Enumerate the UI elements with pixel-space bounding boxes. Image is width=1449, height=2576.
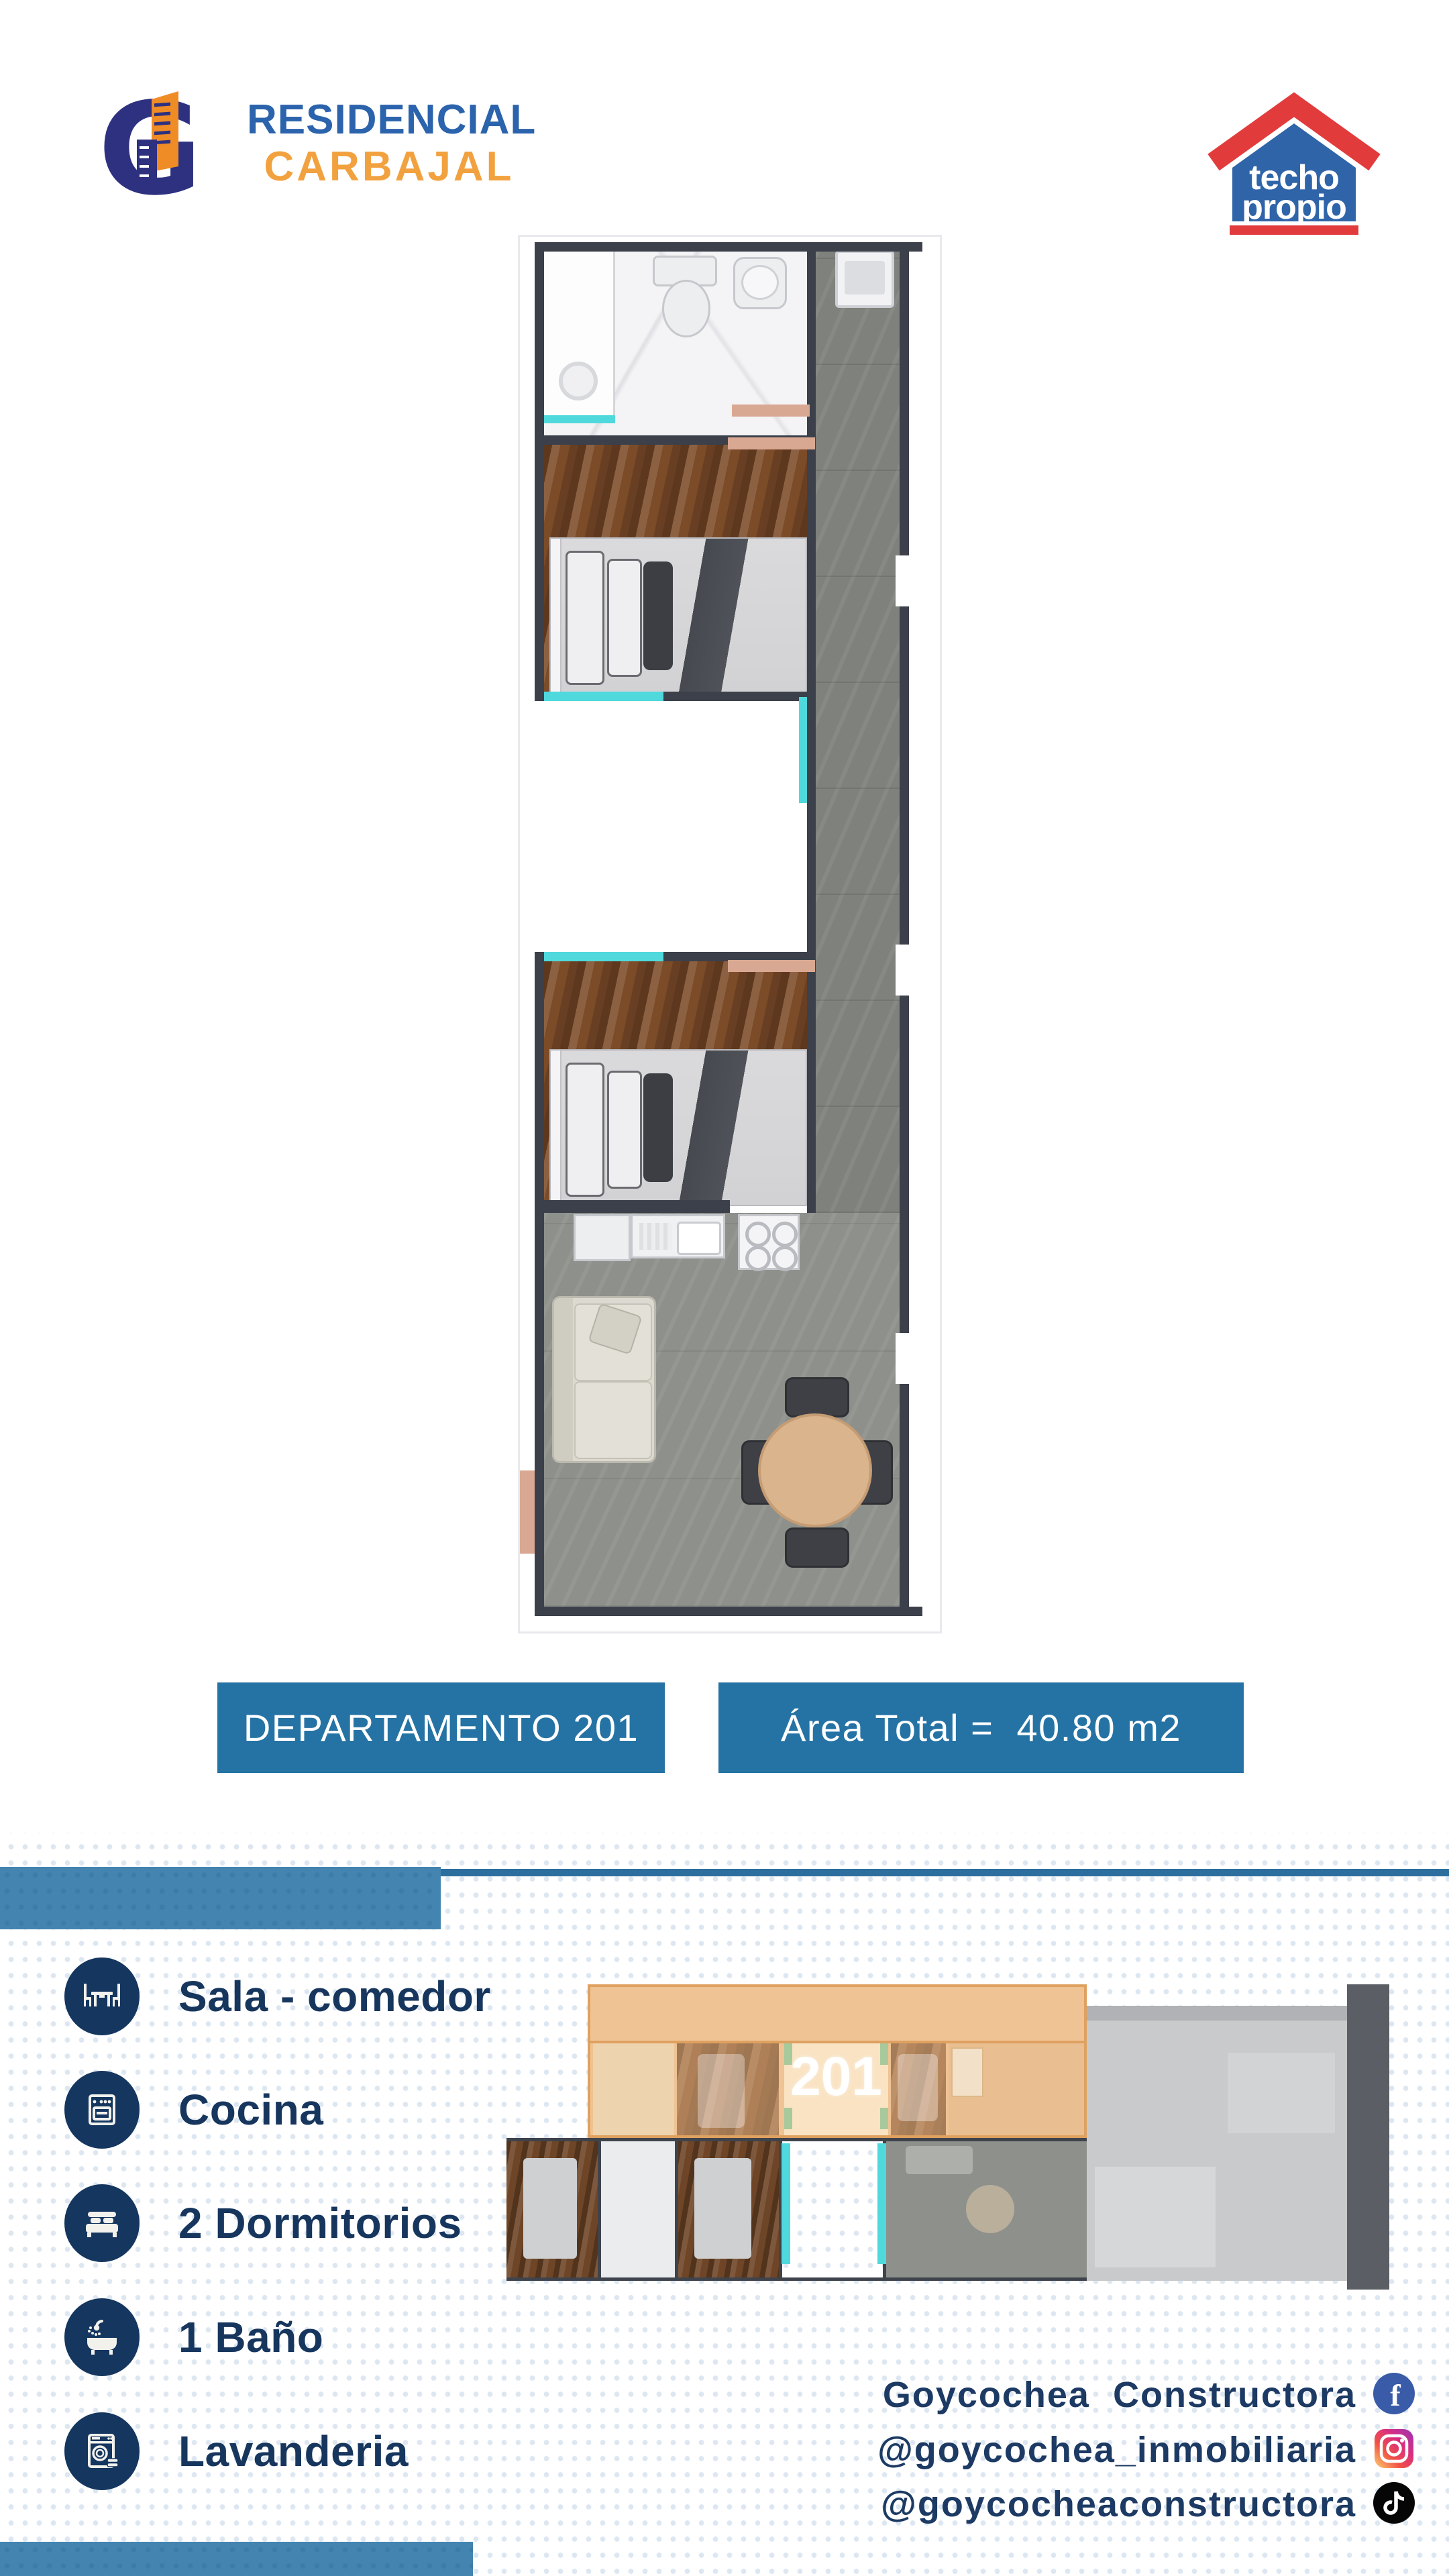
window-bedroom1 (544, 692, 663, 701)
bed-bedroom1 (549, 537, 807, 694)
amenity-dormitorios: 2 Dormitorios (64, 2184, 507, 2262)
amenity-label: 2 Dormitorios (178, 2198, 462, 2248)
hallway-door-gap (896, 1333, 913, 1384)
svg-text:propio: propio (1242, 188, 1346, 227)
patio-window-sill (544, 415, 615, 423)
social-links: Goycochea Constructora f @goycochea_inmo… (805, 2373, 1415, 2534)
bathroom-door (732, 405, 810, 417)
wall-bedroom2-bottom (535, 1200, 730, 1213)
instagram-icon[interactable] (1373, 2427, 1415, 2473)
dining-chair (785, 1377, 849, 1417)
banner-unit: DEPARTAMENTO 201 (217, 1682, 665, 1773)
amenity-label: Lavanderia (178, 2426, 409, 2476)
shower-drain (559, 362, 598, 400)
g-building-icon: G (99, 80, 220, 208)
svg-text:f: f (1390, 2378, 1401, 2412)
wall-top (535, 242, 922, 252)
level-plan: 201 (503, 1972, 1395, 2291)
techo-propio-house-icon: techo propio (1203, 87, 1385, 235)
stove (738, 1214, 800, 1270)
laundry-sink (835, 250, 894, 308)
facebook-handle[interactable]: Goycochea Constructora (883, 2374, 1356, 2416)
facebook-icon[interactable]: f (1373, 2372, 1415, 2418)
techo-propio-logo: techo propio (1203, 87, 1385, 235)
social-facebook[interactable]: Goycochea Constructora f (805, 2373, 1415, 2416)
washer-icon (64, 2412, 140, 2490)
lower-unit-plan (506, 2138, 1087, 2281)
kitchen-cabinet (574, 1214, 631, 1261)
entry-door (520, 1470, 535, 1554)
bed-bedroom2 (549, 1049, 807, 1206)
brand-name: RESIDENCIAL CARBAJAL (247, 99, 531, 188)
social-tiktok[interactable]: @goycocheaconstructora (805, 2483, 1415, 2526)
bedroom1-door (728, 437, 815, 449)
amenity-label: Sala - comedor (178, 1972, 491, 2021)
bedroom2-door (728, 960, 815, 972)
banner-area-label: Área Total = 40.80 m2 (781, 1706, 1181, 1750)
bathroom-sink-basin (741, 265, 779, 300)
stair-shaft-bar (1347, 1984, 1389, 2290)
residencial-carbajal-logo: G (99, 80, 220, 208)
stove-icon (64, 2071, 140, 2149)
sofa (552, 1296, 656, 1463)
kitchen-sink-counter (631, 1214, 725, 1258)
hallway-floor (816, 252, 900, 1213)
dining-table (758, 1413, 872, 1527)
brand-line-carbajal: CARBAJAL (247, 146, 531, 188)
divider-block (0, 1867, 441, 1929)
amenity-bano: 1 Baño (64, 2298, 507, 2376)
neighbor-unit (1087, 2006, 1347, 2281)
brand-line-residencial: RESIDENCIAL (247, 99, 531, 141)
tiktok-icon[interactable] (1373, 2481, 1415, 2528)
amenities-list: Sala - comedor Cocina (64, 1957, 507, 2494)
wall-bottom (535, 1607, 922, 1616)
banner-area: Área Total = 40.80 m2 (718, 1682, 1244, 1773)
amenity-lavanderia: Lavanderia (64, 2412, 507, 2490)
unit-201-highlight: 201 (588, 1984, 1087, 2138)
dining-chair (785, 1527, 849, 1568)
hallway-door-gap (896, 945, 913, 996)
amenity-label: Cocina (178, 2085, 323, 2135)
main-floor-plan (518, 235, 942, 1633)
bath-icon (64, 2298, 140, 2376)
amenity-sala-comedor: Sala - comedor (64, 1957, 507, 2035)
social-instagram[interactable]: @goycochea_inmobiliaria (805, 2428, 1415, 2471)
flyer-poster: G RESIDENCIAL (0, 0, 1449, 2576)
instagram-handle[interactable]: @goycochea_inmobiliaria (877, 2429, 1356, 2471)
unit-number-label: 201 (784, 2049, 888, 2105)
footer-bar (0, 2542, 473, 2576)
wall-hallway-left (807, 242, 816, 1213)
lightwell-void (544, 701, 807, 960)
amenity-cocina: Cocina (64, 2071, 507, 2149)
wall-left-upper (535, 242, 544, 701)
dining-icon (64, 1957, 140, 2035)
bed-icon (64, 2184, 140, 2262)
banner-unit-label: DEPARTAMENTO 201 (244, 1706, 639, 1750)
amenity-label: 1 Baño (178, 2312, 323, 2362)
hallway-door-gap (896, 555, 913, 606)
wall-left-lower (535, 952, 544, 1616)
window-lightwell (799, 697, 807, 803)
tiktok-handle[interactable]: @goycocheaconstructora (881, 2483, 1356, 2525)
window-bedroom2 (544, 952, 663, 961)
toilet-bowl (662, 280, 710, 337)
wall-right (900, 242, 909, 1616)
